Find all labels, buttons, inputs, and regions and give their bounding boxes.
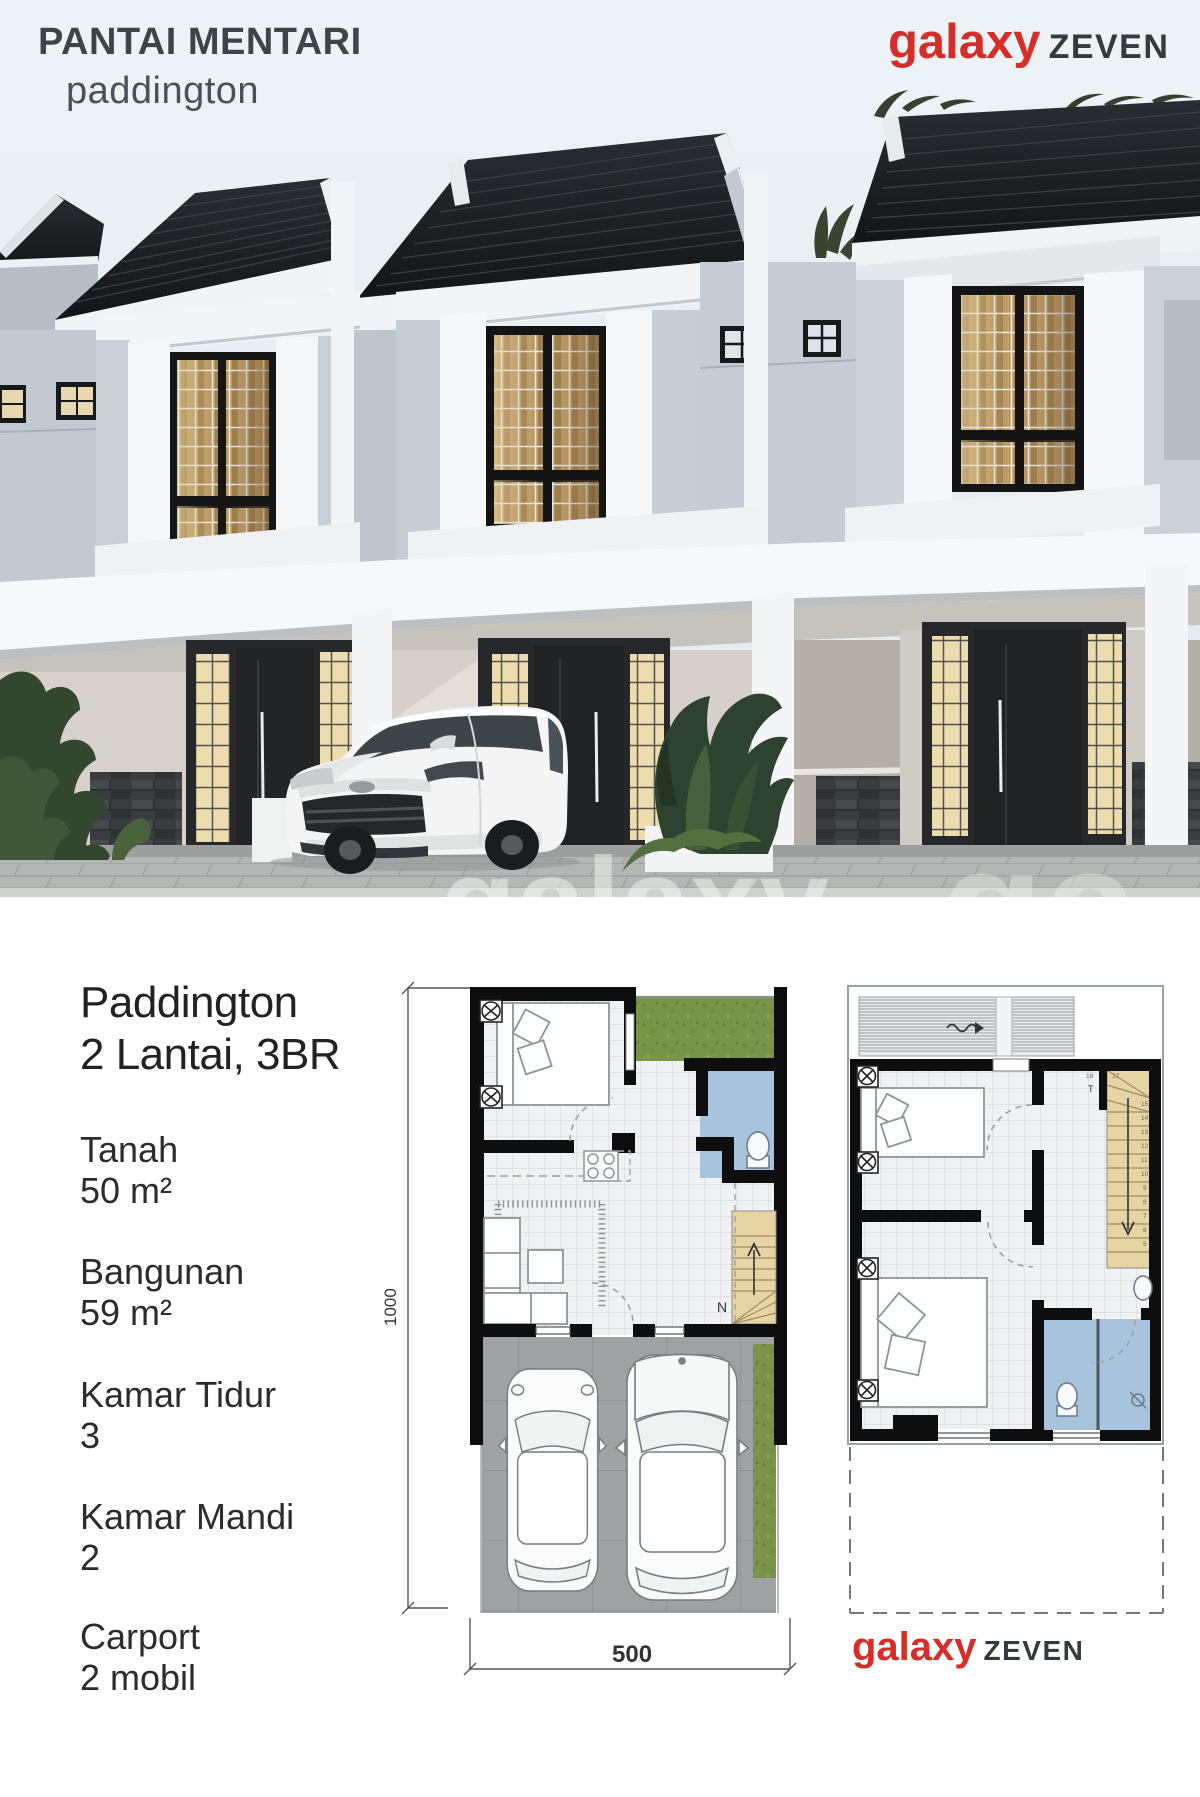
- svg-text:8: 8: [1143, 1199, 1147, 1206]
- svg-text:18: 18: [1086, 1073, 1094, 1080]
- svg-text:15: 15: [1141, 1101, 1149, 1108]
- svg-text:500: 500: [612, 1641, 652, 1668]
- svg-text:1000: 1000: [381, 1288, 400, 1326]
- svg-text:9: 9: [1143, 1185, 1147, 1192]
- svg-text:N: N: [717, 1299, 727, 1315]
- svg-text:11: 11: [1141, 1157, 1148, 1164]
- svg-text:galaxy: galaxy: [440, 833, 829, 897]
- svg-text:12: 12: [1141, 1143, 1149, 1150]
- svg-text:17: 17: [1112, 1073, 1120, 1080]
- svg-text:13: 13: [1141, 1129, 1149, 1136]
- svg-text:T: T: [1088, 1084, 1094, 1094]
- svg-text:10: 10: [1141, 1171, 1149, 1178]
- svg-text:5: 5: [1143, 1241, 1147, 1248]
- svg-text:14: 14: [1141, 1115, 1149, 1122]
- svg-text:6: 6: [1143, 1227, 1147, 1234]
- svg-text:7: 7: [1143, 1213, 1147, 1220]
- svg-text:ga: ga: [940, 812, 1140, 897]
